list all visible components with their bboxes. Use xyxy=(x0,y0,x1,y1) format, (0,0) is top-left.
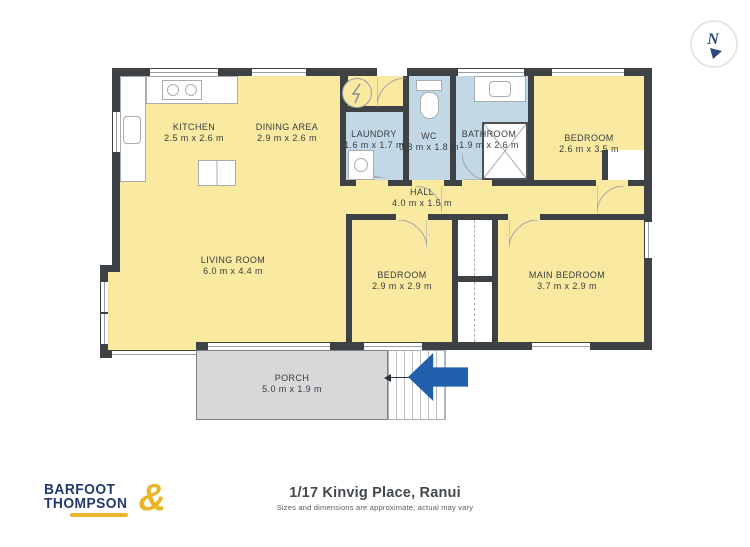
laundry-door-gap xyxy=(356,180,388,186)
stove-burner-icon xyxy=(167,84,179,96)
hall-closet-bottom xyxy=(458,282,492,342)
room-name: MAIN BEDROOM xyxy=(529,270,605,281)
porch-label: PORCH 5.0 m x 1.9 m xyxy=(262,373,322,395)
logo-tagline-bar xyxy=(70,513,128,517)
main-bedroom-door-swing xyxy=(509,220,539,250)
wc-label: WC 0.8 m x 1.8 m xyxy=(399,131,459,153)
living-room-floor-strip xyxy=(120,342,196,350)
disclaimer-text: Sizes and dimensions are approximate, ac… xyxy=(0,503,750,512)
bedroom-top-window xyxy=(552,69,624,76)
main-bedroom-side-window xyxy=(645,222,652,258)
dining-label: DINING AREA 2.9 m x 2.6 m xyxy=(256,122,318,144)
room-dims: 5.0 m x 1.9 m xyxy=(262,384,322,395)
kitchen-side-window xyxy=(113,112,120,152)
bedroom-top-label: BEDROOM 2.6 m x 3.5 m xyxy=(559,133,619,155)
bedroom-mid-door-swing xyxy=(397,220,427,250)
room-dims: 1.6 m x 1.7 m xyxy=(344,140,404,151)
room-dims: 1.9 m x 2.6 m xyxy=(459,140,519,151)
property-address: 1/17 Kinvig Place, Ranui xyxy=(0,485,750,501)
hot-water-cylinder xyxy=(342,78,372,108)
entry-line-arrowhead-icon xyxy=(384,374,391,382)
dining-window xyxy=(252,69,306,76)
toilet-bowl xyxy=(420,92,439,119)
toilet-tank xyxy=(416,80,442,91)
living-room-label: LIVING ROOM 6.0 m x 4.4 m xyxy=(201,255,265,277)
back-door-opening xyxy=(377,68,407,76)
living-bottom-window xyxy=(112,351,196,358)
living-room-floor-bump xyxy=(108,272,120,350)
room-name: WC xyxy=(399,131,459,142)
bedroom-mid-label: BEDROOM 2.9 m x 2.9 m xyxy=(372,270,432,292)
stove-burner-icon xyxy=(185,84,197,96)
bedroom-top-door-swing xyxy=(597,186,625,214)
north-arrow-icon: N xyxy=(692,22,736,66)
room-dims: 6.0 m x 4.4 m xyxy=(201,266,265,277)
bathroom-basin xyxy=(489,81,511,97)
back-door-swing xyxy=(377,78,407,108)
living-porch-slider xyxy=(208,343,330,350)
main-bedroom-label: MAIN BEDROOM 3.7 m x 2.9 m xyxy=(529,270,605,292)
bathroom-label: BATHROOM 1.9 m x 2.6 m xyxy=(459,129,519,151)
room-dims: 2.5 m x 2.6 m xyxy=(164,133,224,144)
hall-closet-top xyxy=(458,220,492,276)
bedroom-mid-window xyxy=(364,343,422,350)
room-dims: 2.9 m x 2.6 m xyxy=(256,133,318,144)
room-dims: 0.8 m x 1.8 m xyxy=(399,142,459,153)
main-bedroom-window xyxy=(532,343,590,350)
room-name: LAUNDRY xyxy=(344,129,404,140)
hall-label: HALL 4.0 m x 1.5 m xyxy=(392,187,452,209)
closet-shelf-line xyxy=(458,282,475,342)
room-dims: 3.7 m x 2.9 m xyxy=(529,281,605,292)
room-name: KITCHEN xyxy=(164,122,224,133)
washing-machine-drum-icon xyxy=(354,158,368,172)
room-name: BATHROOM xyxy=(459,129,519,140)
living-side-window-2 xyxy=(101,314,108,344)
room-name: BEDROOM xyxy=(559,133,619,144)
room-dims: 2.9 m x 2.9 m xyxy=(372,281,432,292)
living-side-window-1 xyxy=(101,282,108,312)
bathroom-window xyxy=(458,69,524,76)
lightning-icon xyxy=(343,79,371,107)
svg-text:N: N xyxy=(706,31,720,48)
room-name: BEDROOM xyxy=(372,270,432,281)
room-dims: 2.6 m x 3.5 m xyxy=(559,144,619,155)
room-name: PORCH xyxy=(262,373,322,384)
room-name: DINING AREA xyxy=(256,122,318,133)
room-name: LIVING ROOM xyxy=(201,255,265,266)
compass: N xyxy=(690,20,738,68)
washing-machine xyxy=(348,150,374,180)
kitchen-sink xyxy=(123,116,141,144)
stove xyxy=(162,80,202,100)
kitchen-label: KITCHEN 2.5 m x 2.6 m xyxy=(164,122,224,144)
laundry-label: LAUNDRY 1.6 m x 1.7 m xyxy=(344,129,404,151)
kitchen-window xyxy=(150,69,218,76)
room-name: HALL xyxy=(392,187,452,198)
room-dims: 4.0 m x 1.5 m xyxy=(392,198,452,209)
closet-shelf-line xyxy=(458,220,475,276)
kitchen-cabinet xyxy=(198,160,236,186)
